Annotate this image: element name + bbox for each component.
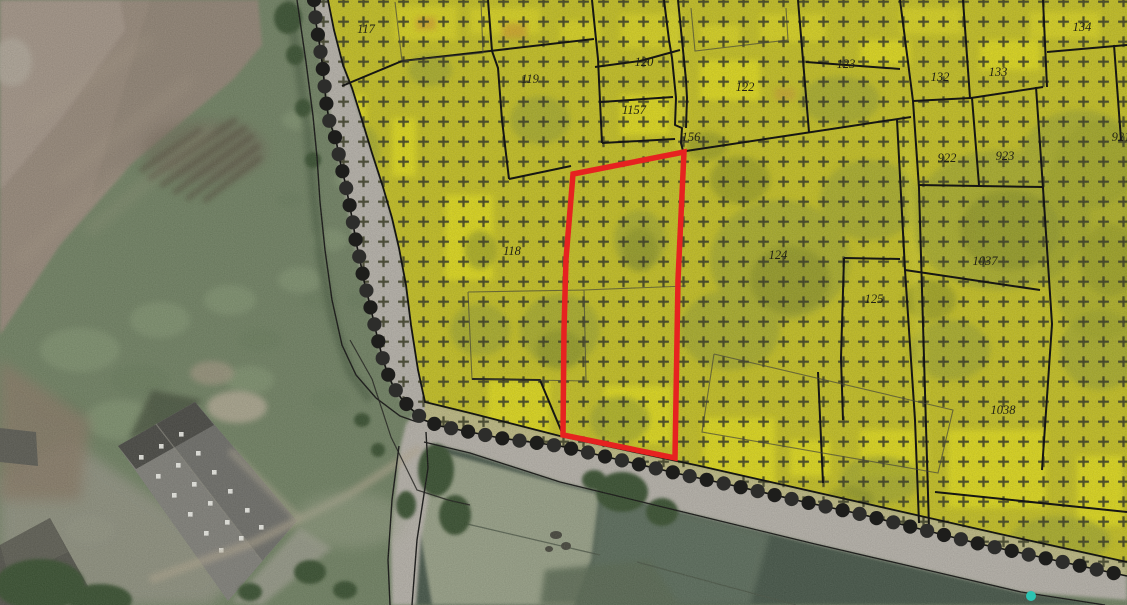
svg-text:120: 120 [635,55,655,69]
svg-text:132: 132 [931,70,950,84]
svg-text:156: 156 [682,130,702,144]
svg-text:921: 921 [1112,130,1127,144]
svg-text:118: 118 [503,244,522,258]
svg-text:122: 122 [736,80,755,94]
svg-text:1038: 1038 [991,403,1017,417]
svg-text:1157: 1157 [622,103,647,117]
svg-text:922: 922 [938,151,957,165]
svg-text:125: 125 [865,292,884,306]
svg-text:133: 133 [989,65,1008,79]
svg-text:124: 124 [769,248,788,262]
svg-text:134: 134 [1073,20,1092,34]
svg-text:119: 119 [521,72,540,86]
svg-text:923: 923 [996,149,1015,163]
svg-text:117: 117 [357,22,376,36]
svg-text:1037: 1037 [973,254,999,268]
svg-text:123: 123 [837,57,856,71]
